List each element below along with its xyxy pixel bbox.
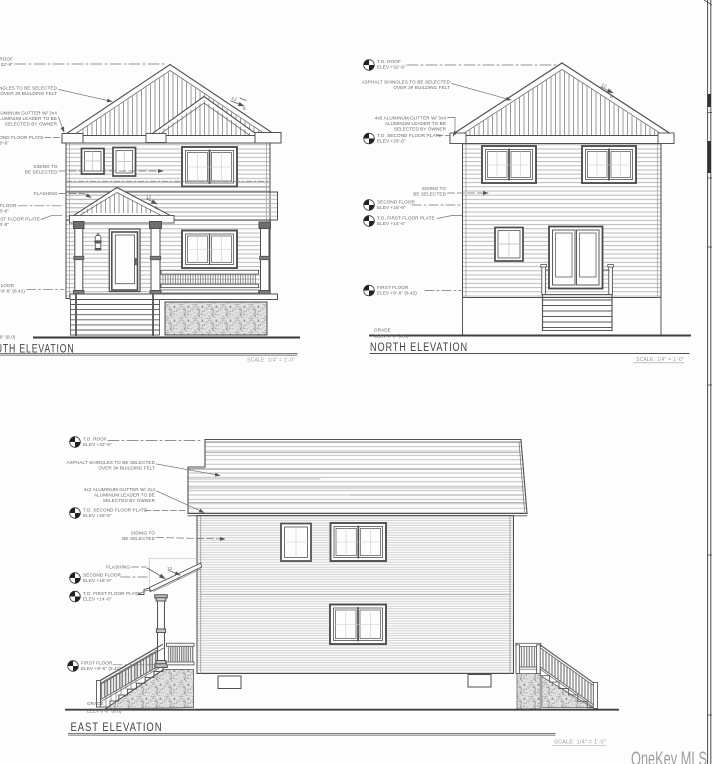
svg-text:T.O. FIRST FLOOR PLATE: T.O. FIRST FLOOR PLATE	[0, 217, 40, 222]
svg-text:ELEV 0'-0" (8.0): ELEV 0'-0" (8.0)	[87, 709, 122, 714]
svg-text:12: 12	[146, 195, 152, 200]
svg-text:SIDING TO: SIDING TO	[131, 531, 156, 536]
svg-text:ELEV +28'-6": ELEV +28'-6"	[377, 139, 406, 144]
svg-text:ELEV +18'-6": ELEV +18'-6"	[83, 578, 112, 583]
svg-text:OVER 3# BUILDING FELT: OVER 3# BUILDING FELT	[393, 85, 450, 90]
svg-text:BE SELECTED: BE SELECTED	[413, 192, 446, 197]
svg-text:4x2 ALUMINUM GUTTER W/ 3x4: 4x2 ALUMINUM GUTTER W/ 3x4	[84, 487, 156, 492]
svg-text:ELEV +28'-6": ELEV +28'-6"	[83, 513, 112, 518]
svg-text:12: 12	[167, 566, 173, 571]
svg-text:ELEV +32'-9": ELEV +32'-9"	[377, 65, 406, 70]
svg-text:ELEV +9'-6" (8.42): ELEV +9'-6" (8.42)	[0, 289, 25, 294]
svg-text:T.O. ROOF: T.O. ROOF	[0, 57, 13, 62]
svg-text:SECOND FLOOR: SECOND FLOOR	[377, 200, 416, 205]
svg-text:SECOND FLOOR: SECOND FLOOR	[0, 203, 17, 208]
svg-text:SIDING TO: SIDING TO	[33, 164, 58, 169]
svg-text:T.O. ROOF: T.O. ROOF	[83, 437, 107, 442]
svg-text:GRADE: GRADE	[374, 328, 391, 333]
svg-text:OneKey MLS: OneKey MLS	[631, 749, 707, 764]
svg-text:ELEV +32'-9": ELEV +32'-9"	[0, 62, 13, 67]
svg-text:T.O. SECOND FLOOR PLATE: T.O. SECOND FLOOR PLATE	[83, 508, 147, 513]
svg-text:BE SELECTED: BE SELECTED	[25, 170, 58, 175]
svg-text:ASPHALT SHINGLES TO BE SELECTE: ASPHALT SHINGLES TO BE SELECTED	[0, 86, 58, 91]
svg-text:T.O. FIRST FLOOR PLATE: T.O. FIRST FLOOR PLATE	[377, 216, 435, 221]
svg-text:ELEV +14'-6": ELEV +14'-6"	[83, 597, 112, 602]
svg-text:ELEV +9'-6" (8.42): ELEV +9'-6" (8.42)	[81, 666, 121, 671]
svg-text:4: 4	[177, 576, 180, 581]
svg-text:ELEV +18'-6": ELEV +18'-6"	[377, 205, 406, 210]
svg-text:ELEV +14'-6": ELEV +14'-6"	[377, 221, 406, 226]
svg-text:EAST ELEVATION: EAST ELEVATION	[71, 722, 163, 734]
svg-text:SELECTED BY OWNER: SELECTED BY OWNER	[5, 122, 58, 127]
svg-text:OVER 3# BUILDING FELT: OVER 3# BUILDING FELT	[0, 91, 57, 96]
svg-text:FIRST FLOOR: FIRST FLOOR	[377, 285, 409, 290]
svg-text:ELEV +18'-6": ELEV +18'-6"	[0, 209, 9, 214]
svg-text:OVER 3# BUILDING FELT: OVER 3# BUILDING FELT	[98, 466, 155, 471]
svg-text:ELEV 0'-0" (8.0): ELEV 0'-0" (8.0)	[0, 335, 16, 340]
svg-text:5: 5	[155, 205, 158, 210]
svg-text:4x5 ALUMINUM GUTTER W/ 3x4: 4x5 ALUMINUM GUTTER W/ 3x4	[0, 111, 57, 116]
svg-text:FLASHING: FLASHING	[34, 191, 58, 196]
svg-text:ELEV +14'-6": ELEV +14'-6"	[0, 222, 9, 227]
svg-text:T.O. ROOF: T.O. ROOF	[377, 59, 401, 64]
svg-text:ASPHALT SHINGLES TO BE SELECTE: ASPHALT SHINGLES TO BE SELECTED	[66, 460, 155, 465]
svg-text:ELEV +32'-9": ELEV +32'-9"	[83, 442, 112, 447]
svg-text:8: 8	[243, 106, 246, 111]
svg-text:ELEV +28'-6": ELEV +28'-6"	[0, 141, 9, 146]
svg-text:GRADE: GRADE	[87, 701, 104, 706]
svg-text:SELECTED BY OWNER: SELECTED BY OWNER	[394, 127, 447, 132]
svg-text:ALUMINUM LEADER TO BE: ALUMINUM LEADER TO BE	[94, 493, 155, 498]
svg-text:SCALE: 1/4" = 1'-0": SCALE: 1/4" = 1'-0"	[636, 357, 684, 363]
svg-text:FIRST FLOOR: FIRST FLOOR	[0, 283, 15, 288]
svg-text:BE SELECTED: BE SELECTED	[122, 536, 155, 541]
svg-text:T.O. FIRST FLOOR PLATE: T.O. FIRST FLOOR PLATE	[83, 591, 141, 596]
svg-text:SECOND FLOOR: SECOND FLOOR	[83, 573, 122, 578]
svg-text:SCALE: 1/4" = 1'-0": SCALE: 1/4" = 1'-0"	[554, 740, 606, 746]
svg-text:T.O. SECOND FLOOR PLATE: T.O. SECOND FLOOR PLATE	[0, 135, 44, 140]
svg-text:SIDING TO: SIDING TO	[422, 186, 447, 191]
svg-text:8: 8	[610, 94, 613, 99]
svg-text:ASPHALT SHINGLES TO BE SELECTE: ASPHALT SHINGLES TO BE SELECTED	[361, 80, 450, 85]
svg-text:ALUMINUM LEADER TO BE: ALUMINUM LEADER TO BE	[0, 116, 57, 121]
svg-text:T.O. SECOND FLOOR PLATE: T.O. SECOND FLOOR PLATE	[377, 133, 441, 138]
svg-text:ELEV +9'-6" (8.42): ELEV +9'-6" (8.42)	[377, 291, 417, 296]
svg-text:ALUMINUM LEADER TO BE: ALUMINUM LEADER TO BE	[385, 121, 446, 126]
svg-text:ELEV 0'-0" (8.0): ELEV 0'-0" (8.0)	[374, 334, 409, 339]
svg-text:FLASHING: FLASHING	[106, 565, 130, 570]
svg-text:SELECTED BY OWNER: SELECTED BY OWNER	[103, 498, 156, 503]
svg-text:FIRST FLOOR: FIRST FLOOR	[81, 661, 113, 666]
svg-text:NORTH ELEVATION: NORTH ELEVATION	[370, 342, 468, 354]
svg-text:SCALE: 1/4" = 1'-0": SCALE: 1/4" = 1'-0"	[247, 358, 295, 364]
svg-text:4x5 ALUMINUM GUTTER W/ 3x4: 4x5 ALUMINUM GUTTER W/ 3x4	[375, 116, 447, 121]
